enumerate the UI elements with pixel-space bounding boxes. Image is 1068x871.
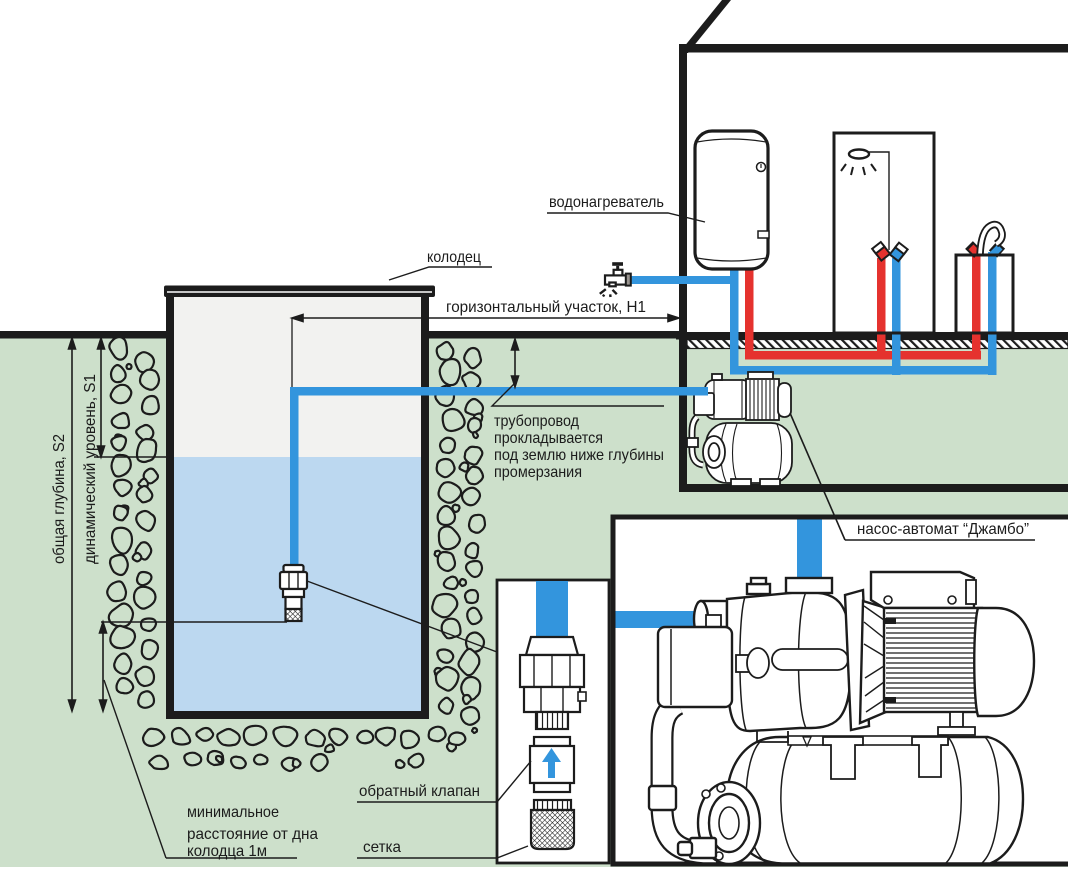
svg-text:водонагреватель: водонагреватель [549, 194, 664, 211]
svg-text:трубопровод: трубопровод [494, 413, 580, 430]
svg-text:под землю ниже глубины: под землю ниже глубины [494, 447, 664, 464]
svg-text:минимальное: минимальное [187, 804, 279, 821]
svg-text:прокладывается: прокладывается [494, 430, 603, 447]
svg-text:обратный клапан: обратный клапан [359, 783, 480, 800]
svg-text:насос-автомат “Джамбо”: насос-автомат “Джамбо” [857, 521, 1029, 538]
svg-text:колодца 1м: колодца 1м [187, 843, 267, 860]
svg-text:горизонтальный участок, Н1: горизонтальный участок, Н1 [446, 299, 646, 316]
svg-text:промерзания: промерзания [494, 464, 582, 481]
svg-text:общая глубина, S2: общая глубина, S2 [51, 434, 68, 564]
svg-text:сетка: сетка [363, 839, 401, 856]
svg-text:колодец: колодец [427, 249, 481, 266]
svg-text:динамический уровень, S1: динамический уровень, S1 [82, 374, 99, 564]
svg-text:расстояние от дна: расстояние от дна [187, 826, 318, 843]
